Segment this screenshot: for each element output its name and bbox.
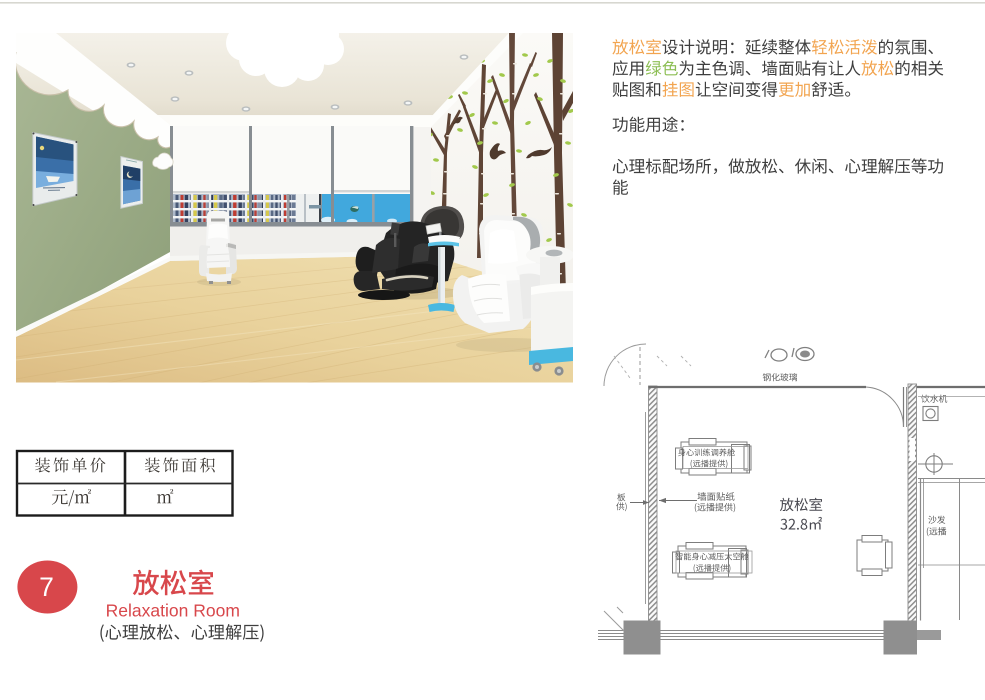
svg-text:Relaxation Room: Relaxation Room xyxy=(106,601,240,621)
svg-text:7: 7 xyxy=(39,572,54,602)
